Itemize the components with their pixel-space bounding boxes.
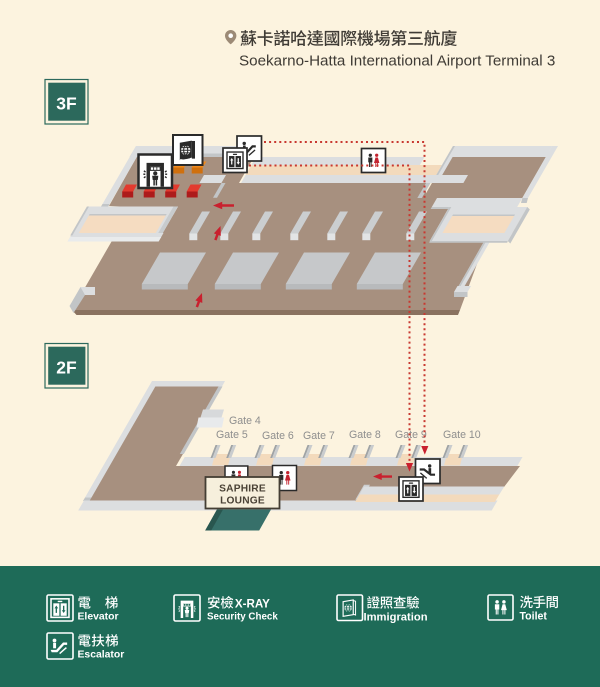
svg-text:Soekarno-Hatta International A: Soekarno-Hatta International Airport Ter… — [239, 53, 555, 70]
svg-text:SAPHIRE: SAPHIRE — [219, 484, 266, 495]
svg-text:Escalator: Escalator — [78, 650, 125, 661]
svg-text:Gate 7: Gate 7 — [303, 430, 335, 442]
svg-text:Elevator: Elevator — [78, 612, 119, 623]
svg-text:LOUNGE: LOUNGE — [220, 496, 265, 507]
svg-text:Gate 10: Gate 10 — [443, 429, 481, 441]
svg-text:X-RAY: X-RAY — [235, 598, 270, 611]
svg-text:Gate 5: Gate 5 — [216, 429, 248, 441]
svg-text:Toilet: Toilet — [520, 611, 548, 623]
svg-text:2F: 2F — [56, 358, 77, 378]
svg-text:Gate 9: Gate 9 — [395, 429, 427, 441]
svg-text:Gate 4: Gate 4 — [229, 415, 261, 427]
svg-text:3F: 3F — [56, 94, 77, 114]
svg-text:Immigration: Immigration — [364, 612, 428, 624]
svg-text:Security Check: Security Check — [207, 612, 278, 623]
svg-text:Gate 6: Gate 6 — [262, 430, 294, 442]
svg-text:Gate 8: Gate 8 — [349, 429, 381, 441]
